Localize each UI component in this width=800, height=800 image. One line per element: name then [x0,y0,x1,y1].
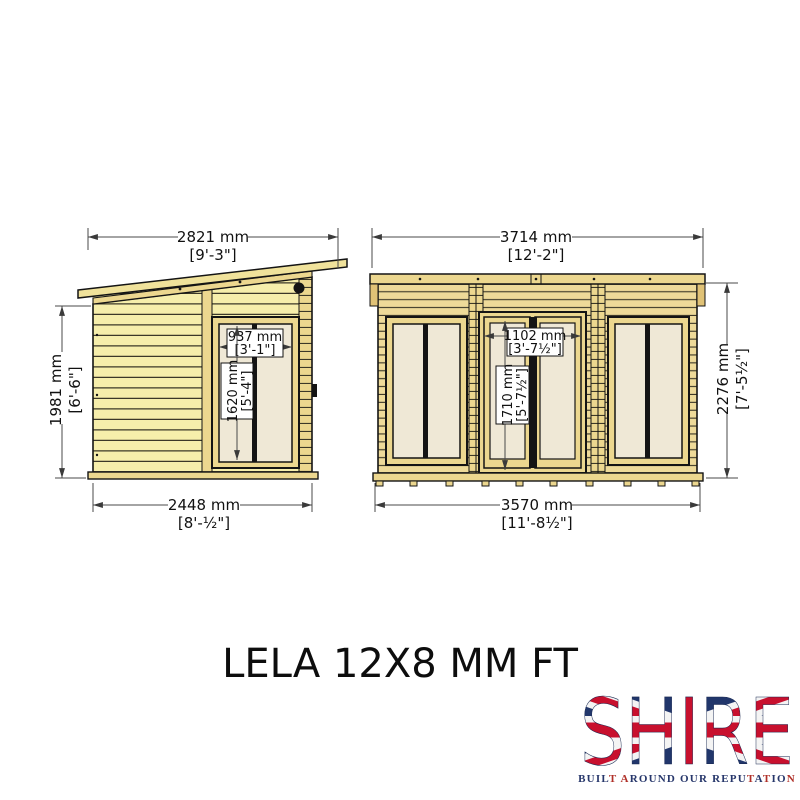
front-floor [373,473,703,481]
front-window-right [608,317,689,465]
window-mullion [423,324,428,458]
nail-dot [535,278,538,281]
dim-front-top-mm: 3714 mm [500,228,572,246]
dim-door-h-mm: 1710 mm [501,364,516,427]
dim-door-w-ft: [3'-7½"] [508,342,562,357]
shire-logo: SHIRE BUILT AROUND OUR REPUTATION [577,692,797,792]
dim-door-h-ft: [5'-7½"] [515,368,530,422]
dim-front-height-mm: 2276 mm [714,343,732,415]
dim-front-base-ft: [11'-8½"] [501,514,572,532]
nail-dot [477,278,480,281]
dim-side-height-mm: 1981 mm [47,354,65,426]
nail-dot [96,394,98,396]
side-floor [88,472,318,479]
dim-window-w-ft: [3'-1"] [235,343,276,358]
dim-window-h-mm: 1620 mm [226,360,241,423]
dim-side-base-ft: [8'-½"] [178,514,230,532]
dim-side-height-ft: [6'-6"] [66,366,84,413]
dim-side-base-mm: 2448 mm [168,496,240,514]
roof-return-left [370,284,378,306]
nail-dot [593,278,596,281]
technical-drawing-page: 2821 mm [9'-3"] 1981 mm [6'-6"] 937 mm [… [0,0,800,800]
side-view: 2821 mm [9'-3"] 1981 mm [6'-6"] 937 mm [… [47,228,347,532]
dim-front-base-mm: 3570 mm [501,496,573,514]
dim-front-top-ft: [12'-2"] [508,246,565,264]
front-window-left [386,317,467,465]
dim-front-height-ft: [7'-5½"] [733,348,751,410]
nail-dot [96,454,98,456]
nail-dot [96,334,98,336]
side-door-handle [312,384,317,397]
roof-return-right [697,284,705,306]
dim-side-window-width: 937 mm [3'-1"] [219,329,292,358]
dim-side-top-ft: [9'-3"] [189,246,236,264]
brand-tagline: BUILT AROUND OUR REPUTATION [577,773,797,785]
dim-side-top-mm: 2821 mm [177,228,249,246]
door-handle [529,384,537,397]
side-door-trim [202,280,212,472]
brand-name: SHIRE [580,692,794,768]
nail-dot [419,278,422,281]
shire-logo-wordmark: SHIRE [577,692,797,768]
nail-dot [649,278,652,281]
drawing-title: LELA 12X8 MM FT [0,641,800,687]
front-view: 3714 mm [12'-2"] 1102 mm [3'-7½"] 1710 m… [370,228,751,532]
window-mullion [645,324,650,458]
floor-bearers [376,481,699,486]
nail-dot [179,288,182,291]
dim-window-h-ft: [5'-4"] [240,371,255,412]
side-corner-logs [299,268,312,472]
nail-dot [239,281,242,284]
roof-cap-dot [294,283,305,294]
